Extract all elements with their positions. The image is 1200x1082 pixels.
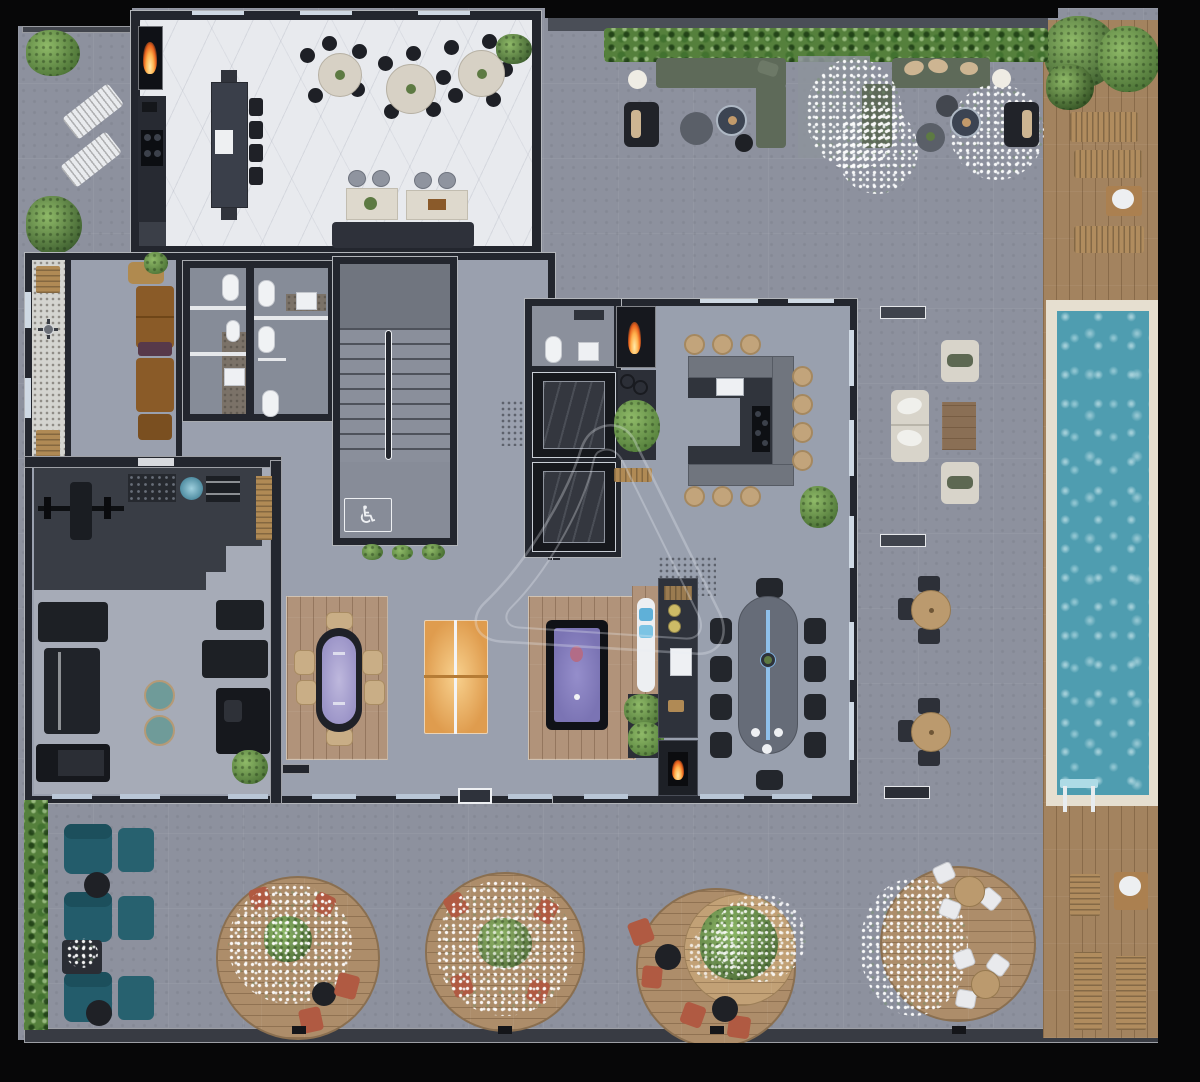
rack-bar	[206, 481, 240, 483]
toilet	[258, 326, 275, 353]
weight-plate	[104, 497, 111, 519]
fireplace-flame	[672, 760, 684, 780]
bar-stool	[740, 486, 761, 507]
billiard-felt	[554, 628, 600, 722]
billiard-rack	[570, 646, 583, 662]
lounger-cushion-blue	[639, 608, 653, 621]
cafe-chair	[444, 40, 459, 55]
deck-foot	[952, 1026, 966, 1034]
chair-back-teal	[64, 972, 112, 987]
poker-logo	[333, 702, 345, 705]
side-table-black	[84, 872, 110, 898]
window-slit	[228, 794, 268, 799]
window-slit	[25, 378, 31, 418]
bar-stool	[712, 334, 733, 355]
gym-mat	[34, 546, 226, 572]
toilet	[545, 336, 562, 363]
poker-chair	[362, 650, 383, 675]
dining-chair-dark	[756, 770, 783, 790]
cafe-chair	[448, 88, 463, 103]
outdoor-armchair-black	[624, 102, 659, 147]
wc-shelf	[574, 310, 604, 320]
table-plant	[477, 69, 487, 79]
side-table-black	[655, 944, 681, 970]
frame-bottom	[0, 1043, 1200, 1082]
ottoman-teal	[118, 828, 154, 872]
side-table-black	[735, 134, 753, 152]
table-dish	[762, 744, 772, 754]
counter-inner-floor	[688, 398, 740, 446]
window-slit	[312, 794, 356, 799]
hedge-column	[24, 800, 48, 1030]
pool-water	[1057, 311, 1149, 795]
armchair-cushion-olive	[947, 354, 973, 367]
table-runner-board	[215, 130, 233, 154]
gym-shelf-wood	[256, 476, 272, 540]
window-slit	[700, 299, 758, 303]
outdoor-sofa-olive	[756, 84, 786, 148]
table-plant	[335, 70, 345, 80]
treadmill-belt	[58, 750, 104, 776]
kitchen-sink	[716, 378, 744, 396]
ottoman-teal	[118, 976, 154, 1020]
bar-stool	[792, 394, 813, 415]
wall-stub	[884, 786, 930, 799]
table-dish	[774, 728, 783, 737]
window-slit	[849, 702, 854, 760]
lounge-chair-gray	[438, 172, 456, 189]
table-end-bench	[221, 208, 237, 220]
bathroom-sink	[224, 368, 245, 386]
dining-chair-dark	[710, 656, 732, 682]
ottoman-teal	[118, 896, 154, 940]
bar-bowl	[668, 604, 681, 617]
frame-right	[1158, 0, 1200, 1082]
table-plant	[926, 132, 935, 141]
floor-plan-render: ♿	[0, 0, 1200, 1082]
spa-bench	[36, 266, 60, 293]
dining-chair-dark	[804, 618, 826, 644]
pool-ladder-rail	[1063, 786, 1067, 812]
billiard-cueball	[574, 694, 580, 700]
window-slit	[192, 11, 244, 15]
armchair-pillow	[1022, 110, 1032, 138]
wall-stub	[880, 534, 926, 547]
pool-deck-plant	[1098, 26, 1160, 92]
bar-bowl	[668, 620, 681, 633]
table-dish	[751, 728, 760, 737]
cooktop-burner	[762, 420, 768, 426]
window-slit	[300, 11, 352, 15]
poker-chair	[296, 680, 317, 705]
deck-foot	[498, 1026, 512, 1034]
side-table-black	[86, 1000, 112, 1026]
void-corner	[18, 8, 132, 26]
wall-stub	[282, 764, 310, 774]
window-slit	[52, 794, 92, 799]
gym-machine	[44, 648, 100, 734]
poker-felt	[322, 636, 356, 724]
dining-chair	[249, 121, 263, 139]
window-slit	[584, 794, 628, 799]
gym-mat	[34, 572, 206, 590]
bar-item-wood	[668, 700, 684, 712]
pool-towel	[1112, 189, 1134, 209]
weight-bench	[70, 482, 92, 540]
hall-plant	[362, 544, 383, 560]
table-plant	[406, 84, 416, 94]
table-end-bench	[221, 70, 237, 82]
frame-top	[0, 0, 1200, 8]
spa-wall	[65, 260, 71, 466]
kitchen-cabinet	[139, 222, 166, 246]
sofa-divider	[891, 424, 929, 426]
elevator-car	[543, 381, 605, 449]
bar-stool	[792, 450, 813, 471]
fireplace-flame	[143, 42, 157, 74]
dining-chair	[249, 167, 263, 185]
stall-partition	[190, 352, 246, 356]
pool-ladder-rail	[1091, 786, 1095, 812]
bar-stool	[740, 334, 761, 355]
wall-stub	[880, 306, 926, 319]
window-slit	[788, 299, 834, 303]
window-slit	[849, 330, 854, 386]
table-dot	[929, 608, 934, 613]
spa-bench	[36, 430, 60, 457]
window-slit	[849, 622, 854, 680]
bar-stool	[684, 334, 705, 355]
gym-pouf	[144, 680, 175, 711]
stove-burner	[154, 150, 161, 157]
table-item	[728, 116, 737, 125]
cafe-chair	[436, 70, 451, 85]
dining-chair-dark	[710, 732, 732, 758]
cafe-chair	[378, 56, 393, 71]
hall-plant	[422, 544, 445, 560]
bar-stool	[684, 486, 705, 507]
terrace-boundary-wall	[24, 1028, 1160, 1043]
window-slit	[772, 794, 812, 799]
hall-plant	[392, 545, 413, 560]
stair-landing-upper	[340, 264, 450, 328]
flower-overlay	[470, 908, 540, 976]
window-slit	[396, 794, 440, 799]
fireplace-flame	[628, 322, 641, 354]
bathroom-sink	[296, 292, 317, 310]
gym-machine	[216, 688, 270, 754]
window-slit	[418, 11, 470, 15]
counter-sink	[142, 102, 157, 112]
terrace-plant	[26, 196, 82, 254]
patio-table-wood	[971, 970, 1000, 999]
dining-chair	[249, 98, 263, 116]
pingpong-net	[424, 675, 488, 678]
entry-door	[458, 788, 492, 804]
sun-lounger	[1070, 112, 1138, 142]
gym-machine	[38, 602, 108, 642]
dining-chair-dark	[804, 694, 826, 720]
stall-partition	[190, 306, 246, 310]
kitchen-plant	[800, 486, 838, 528]
table-plant	[364, 197, 377, 210]
dining-chair-dark	[804, 732, 826, 758]
terrace-chair-red	[641, 965, 663, 989]
dining-chair-dark	[756, 578, 783, 598]
wood-bench-slatted	[614, 468, 652, 482]
window-slit	[849, 516, 854, 568]
cafe-chair	[352, 44, 367, 59]
wall-decor-ring	[633, 380, 648, 395]
gym-pouf	[144, 715, 175, 746]
side-table-black	[312, 982, 336, 1006]
sun-lounger	[1074, 226, 1144, 253]
decor-plant	[614, 400, 660, 452]
side-table-white	[628, 70, 647, 89]
table-dot	[929, 730, 934, 735]
coffee-table-round	[680, 112, 713, 145]
cafe-chair	[300, 48, 315, 63]
shower-rail	[258, 358, 286, 361]
frame-left	[0, 0, 18, 1082]
bar-stool	[712, 486, 733, 507]
armchair-pillow	[631, 110, 641, 138]
gym-machine	[202, 640, 268, 678]
sofa-bench	[332, 222, 474, 248]
exercise-ball	[180, 477, 203, 500]
sun-lounger	[1116, 956, 1146, 1030]
shower-head	[43, 324, 54, 335]
lounge-chair-gray	[348, 170, 366, 187]
dumbbell-rack	[128, 474, 176, 502]
window-slit	[508, 794, 552, 799]
chair-back-teal	[64, 824, 112, 839]
table-item	[962, 118, 971, 127]
gym-door	[138, 458, 174, 466]
bar-stool	[792, 422, 813, 443]
bar-sink	[670, 648, 692, 676]
table-tray	[428, 199, 446, 210]
bistro-chair	[918, 628, 940, 644]
deck-foot	[710, 1026, 724, 1034]
stair-treads	[340, 328, 450, 462]
flower-mass	[860, 878, 968, 1016]
dining-chair-dark	[710, 694, 732, 720]
corner-plant	[496, 34, 532, 64]
side-table-black	[712, 996, 738, 1022]
centerpiece-plant	[764, 656, 772, 664]
weight-rack	[206, 476, 240, 502]
cooktop-burner	[755, 430, 761, 436]
side-table-white	[992, 69, 1011, 88]
patio-coffee-table	[942, 402, 976, 450]
patio-table-wood	[954, 876, 985, 907]
window-slit	[120, 794, 160, 799]
bar-slat-rack	[664, 586, 692, 600]
cafe-chair	[406, 46, 421, 61]
machine-rail	[58, 652, 61, 730]
poker-chair	[364, 680, 385, 705]
stove-burner	[154, 134, 161, 141]
cafe-chair	[308, 88, 323, 103]
window-slit	[849, 420, 854, 476]
dining-chair-dark	[804, 656, 826, 682]
lounge-chair-gray	[372, 170, 390, 187]
stove-burner	[144, 134, 151, 141]
leather-sofa	[136, 358, 174, 412]
patterned-pillow	[138, 342, 172, 356]
pool-deck-plant	[1046, 64, 1094, 110]
gym-plant	[232, 750, 268, 784]
dining-chair-dark	[710, 618, 732, 644]
leather-ottoman	[138, 414, 172, 440]
cafe-chair	[482, 34, 497, 49]
bistro-chair	[918, 750, 940, 766]
weight-plate	[44, 497, 51, 519]
flowering-tree	[836, 106, 918, 194]
lounger-cushion-blue	[639, 625, 653, 638]
stall-partition	[254, 316, 328, 320]
window-slit	[700, 794, 744, 799]
sun-lounger	[1074, 952, 1102, 1030]
sofa-seam	[136, 316, 174, 318]
table-runner-blue	[766, 610, 770, 740]
cooktop-burner	[762, 440, 768, 446]
rack-bar	[206, 493, 240, 495]
armchair-cushion-olive	[947, 476, 973, 489]
sofa-pillow-beige	[960, 62, 978, 75]
cafe-chair	[322, 36, 337, 51]
elevator-car	[543, 471, 605, 543]
sun-lounger	[1070, 874, 1100, 916]
bathroom-sink	[578, 342, 599, 361]
bar-stool	[792, 366, 813, 387]
void-strip	[545, 8, 1058, 18]
cooktop-burner	[755, 411, 761, 417]
terrace-plant	[26, 30, 80, 76]
flower-mass	[688, 928, 740, 980]
gym-machine	[216, 600, 264, 630]
poker-logo	[333, 652, 345, 655]
deck-foot	[292, 1026, 306, 1034]
sun-lounger	[1074, 150, 1142, 178]
toilet	[222, 274, 239, 301]
lounge-chair-gray	[414, 172, 432, 189]
kitchen-counter-u-bottom	[688, 464, 794, 486]
flower-bouquet	[66, 938, 98, 968]
table-plant	[144, 252, 168, 274]
toilet	[258, 280, 275, 307]
poker-chair	[294, 650, 315, 675]
stair-handrail	[385, 330, 392, 460]
toilet	[226, 320, 240, 342]
accessibility-icon: ♿	[346, 498, 390, 532]
pool-towel	[1119, 876, 1141, 896]
machine-seat	[224, 700, 242, 722]
dining-chair	[249, 144, 263, 162]
window-slit	[25, 292, 31, 328]
stove-burner	[144, 150, 151, 157]
toilet	[262, 390, 279, 417]
